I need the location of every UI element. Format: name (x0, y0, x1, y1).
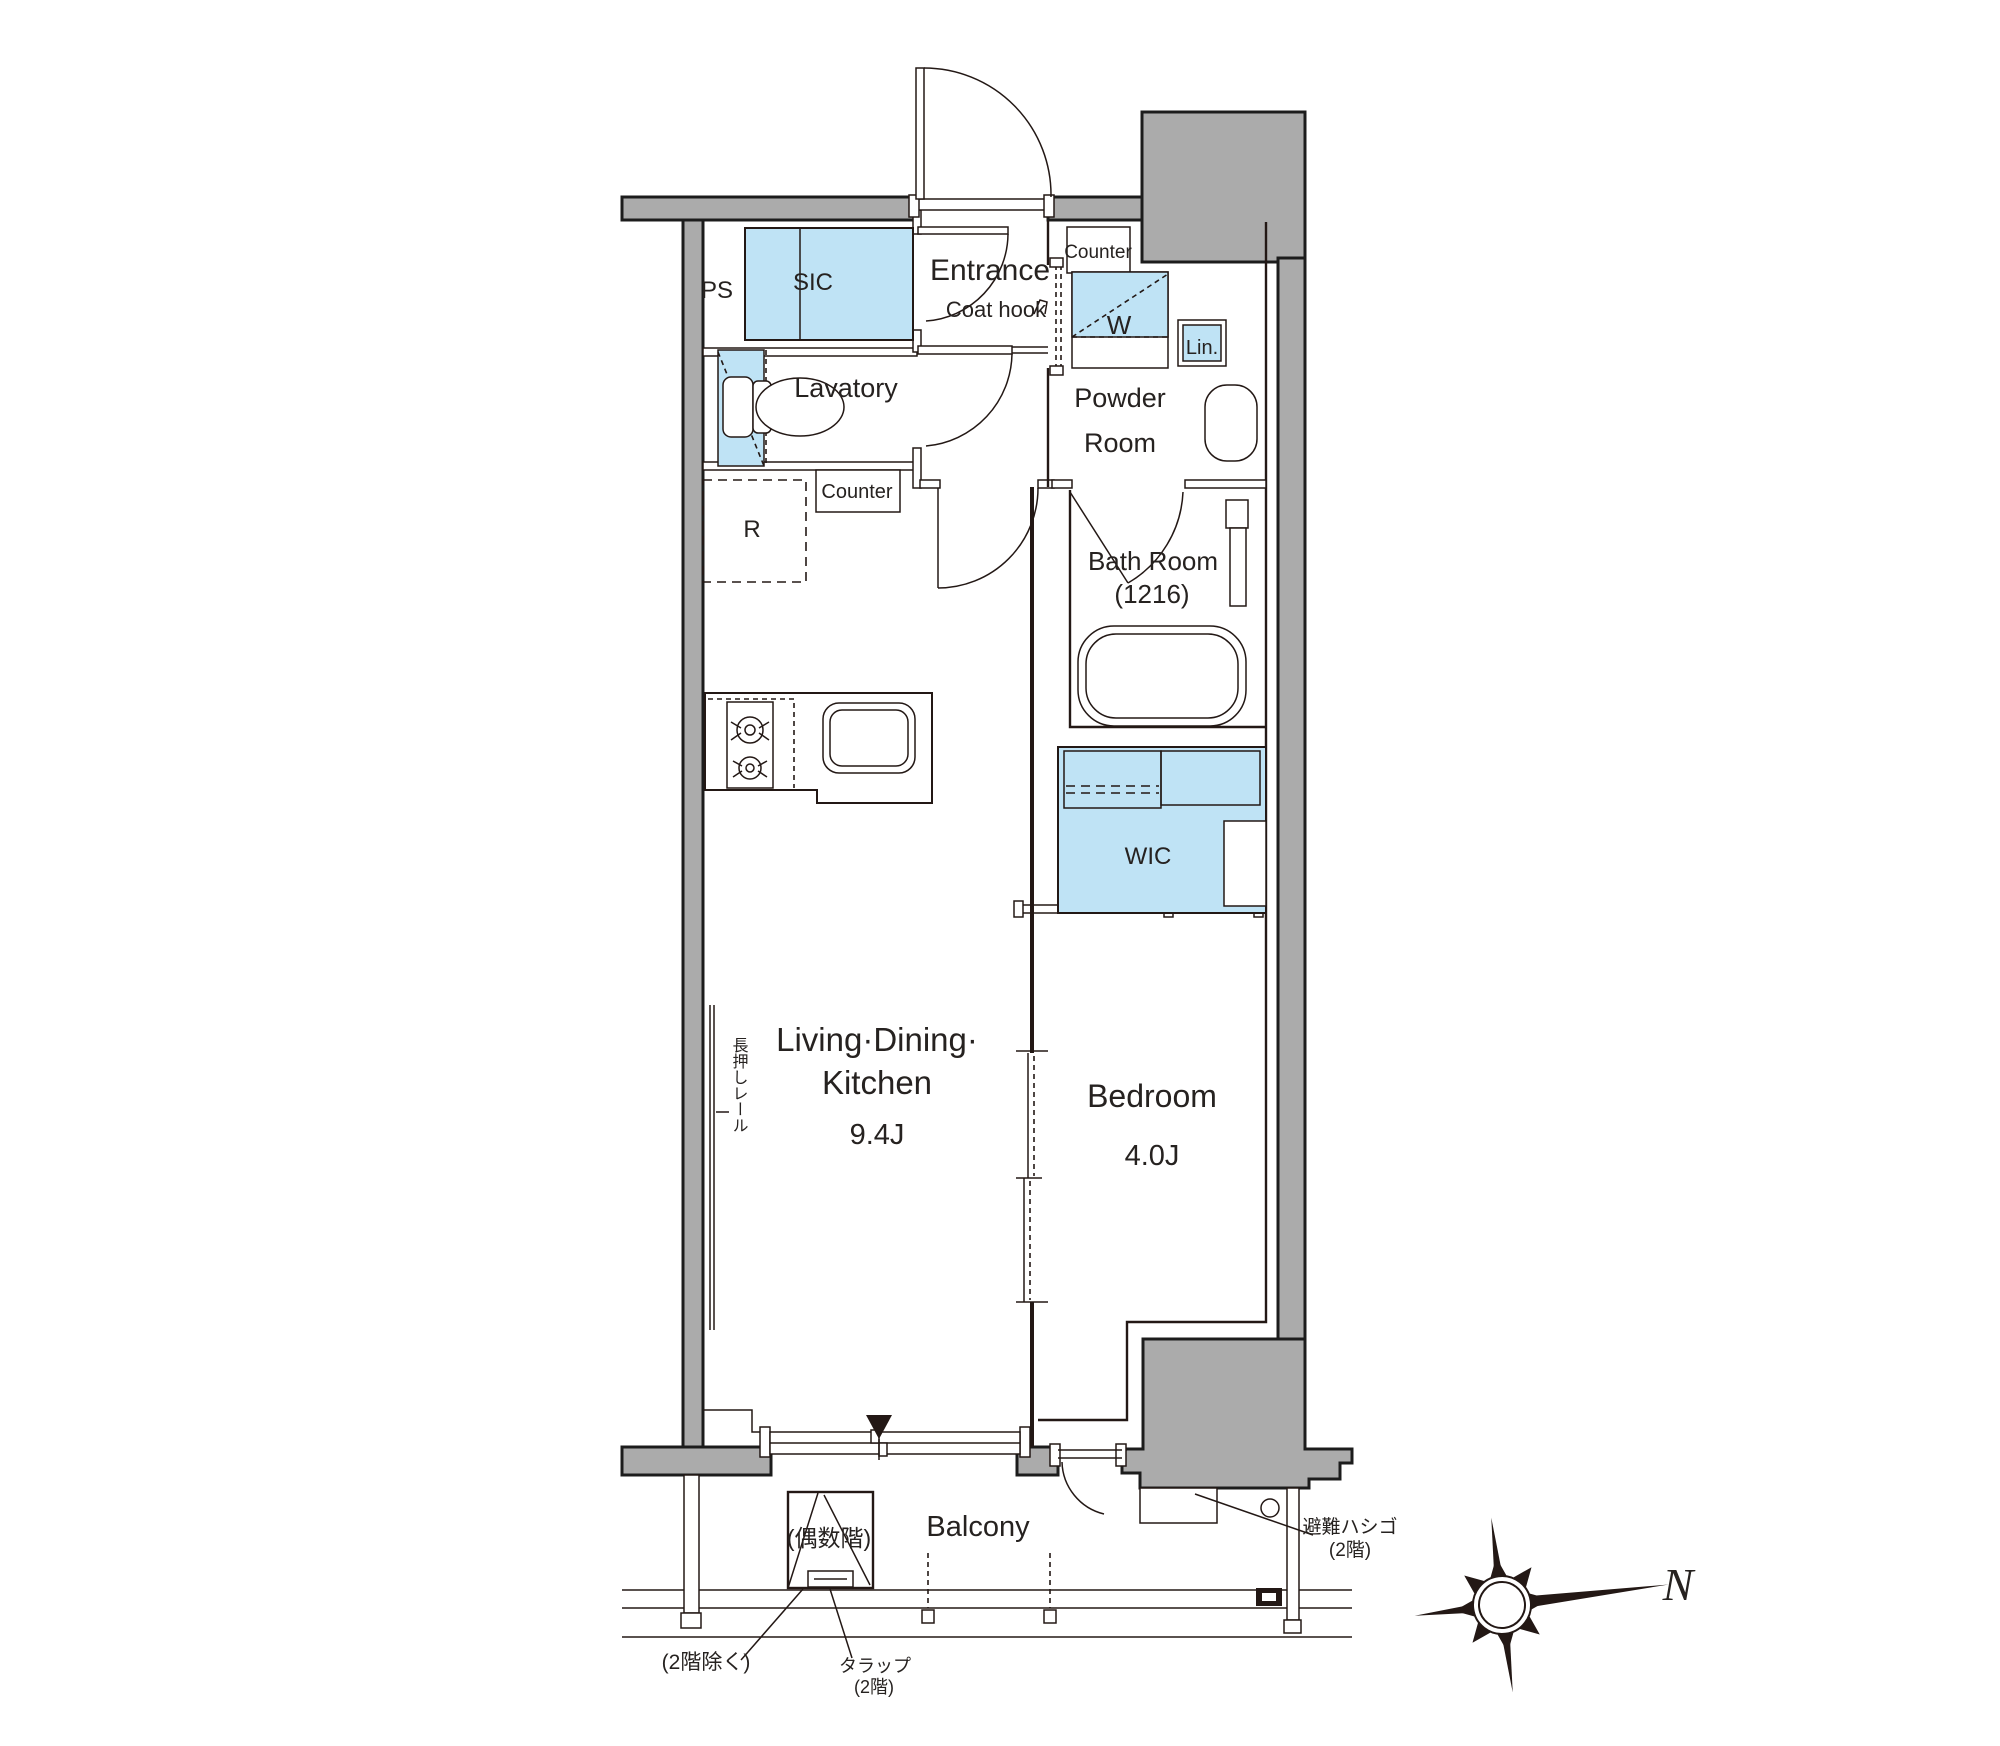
escape-ladder-label-2: (2階) (1329, 1539, 1371, 1561)
nageshi-rail-label: 長押しレール (730, 1037, 749, 1133)
coat-hook-label: Coat hook (946, 297, 1047, 322)
washer-label: W (1107, 310, 1132, 340)
ps-label: PS (701, 277, 733, 304)
floor-plan-page: PS SIC Entrance Coat hook Counter W Lin.… (0, 0, 2000, 1746)
entrance-door-swing (924, 68, 1051, 197)
escape-ladder-ring-icon (1261, 1499, 1279, 1517)
trap-label-1: タラップ (839, 1656, 911, 1676)
ldk-door (938, 488, 1038, 588)
wic-label: WIC (1125, 843, 1172, 870)
lower-right-column (1122, 1339, 1352, 1488)
stove-icon (727, 702, 773, 788)
hatch-even-floor-label: (偶数階) (787, 1525, 871, 1551)
drain-icon (1256, 1588, 1282, 1606)
linen-label: Lin. (1186, 337, 1218, 359)
lavatory-area (718, 350, 844, 466)
wic-area (1058, 747, 1266, 913)
refrigerator-label: R (743, 516, 760, 543)
entrance-sill (917, 199, 1048, 210)
ldk-label-2: Kitchen (822, 1064, 932, 1101)
kitchen-counter-label: Counter (821, 481, 892, 503)
bath-room-label-2: (1216) (1114, 579, 1189, 609)
escape-ladder-label-1: 避難ハシゴ (1302, 1516, 1397, 1538)
compass-rose-icon (1404, 1497, 1680, 1703)
lavatory-door-leaf (918, 346, 1012, 354)
powder-room-label-2: Room (1084, 428, 1156, 458)
wic-chest (1224, 821, 1266, 906)
bedroom-balcony-door (1050, 1444, 1126, 1514)
floor-plan-drawing: PS SIC Entrance Coat hook Counter W Lin.… (0, 0, 2000, 1746)
ldk-size-label: 9.4J (850, 1119, 905, 1151)
ldk-window (760, 1415, 1030, 1460)
entrance-door-leaf (916, 68, 924, 199)
sic-label: SIC (793, 269, 833, 296)
kitchen-sink-icon (823, 703, 915, 773)
powder-counter-label: Counter (1064, 242, 1132, 263)
lavatory-door-swing (926, 354, 1012, 446)
balcony-area (622, 1475, 1352, 1660)
entrance-label: Entrance (930, 254, 1050, 287)
ldk-label-1: Living·Dining· (776, 1021, 978, 1058)
powder-room-label-1: Powder (1074, 383, 1166, 413)
vanity-sink-icon (1205, 385, 1257, 461)
trap-label-2: (2階) (854, 1677, 894, 1697)
bedroom-label: Bedroom (1087, 1078, 1217, 1114)
kitchen-counter (705, 693, 932, 803)
bath-room-label-1: Bath Room (1088, 546, 1218, 576)
compass-north-label: N (1662, 1559, 1696, 1610)
lavatory-label: Lavatory (794, 373, 898, 403)
nageshi-rail (710, 1005, 729, 1330)
bedroom-size-label: 4.0J (1125, 1140, 1180, 1172)
bathtub-icon (1078, 626, 1246, 726)
escape-ladder-box (1140, 1488, 1217, 1523)
balcony-label: Balcony (926, 1511, 1030, 1543)
except-2f-label: (2階除く) (662, 1651, 751, 1674)
sic-door-leaf (918, 227, 1008, 234)
